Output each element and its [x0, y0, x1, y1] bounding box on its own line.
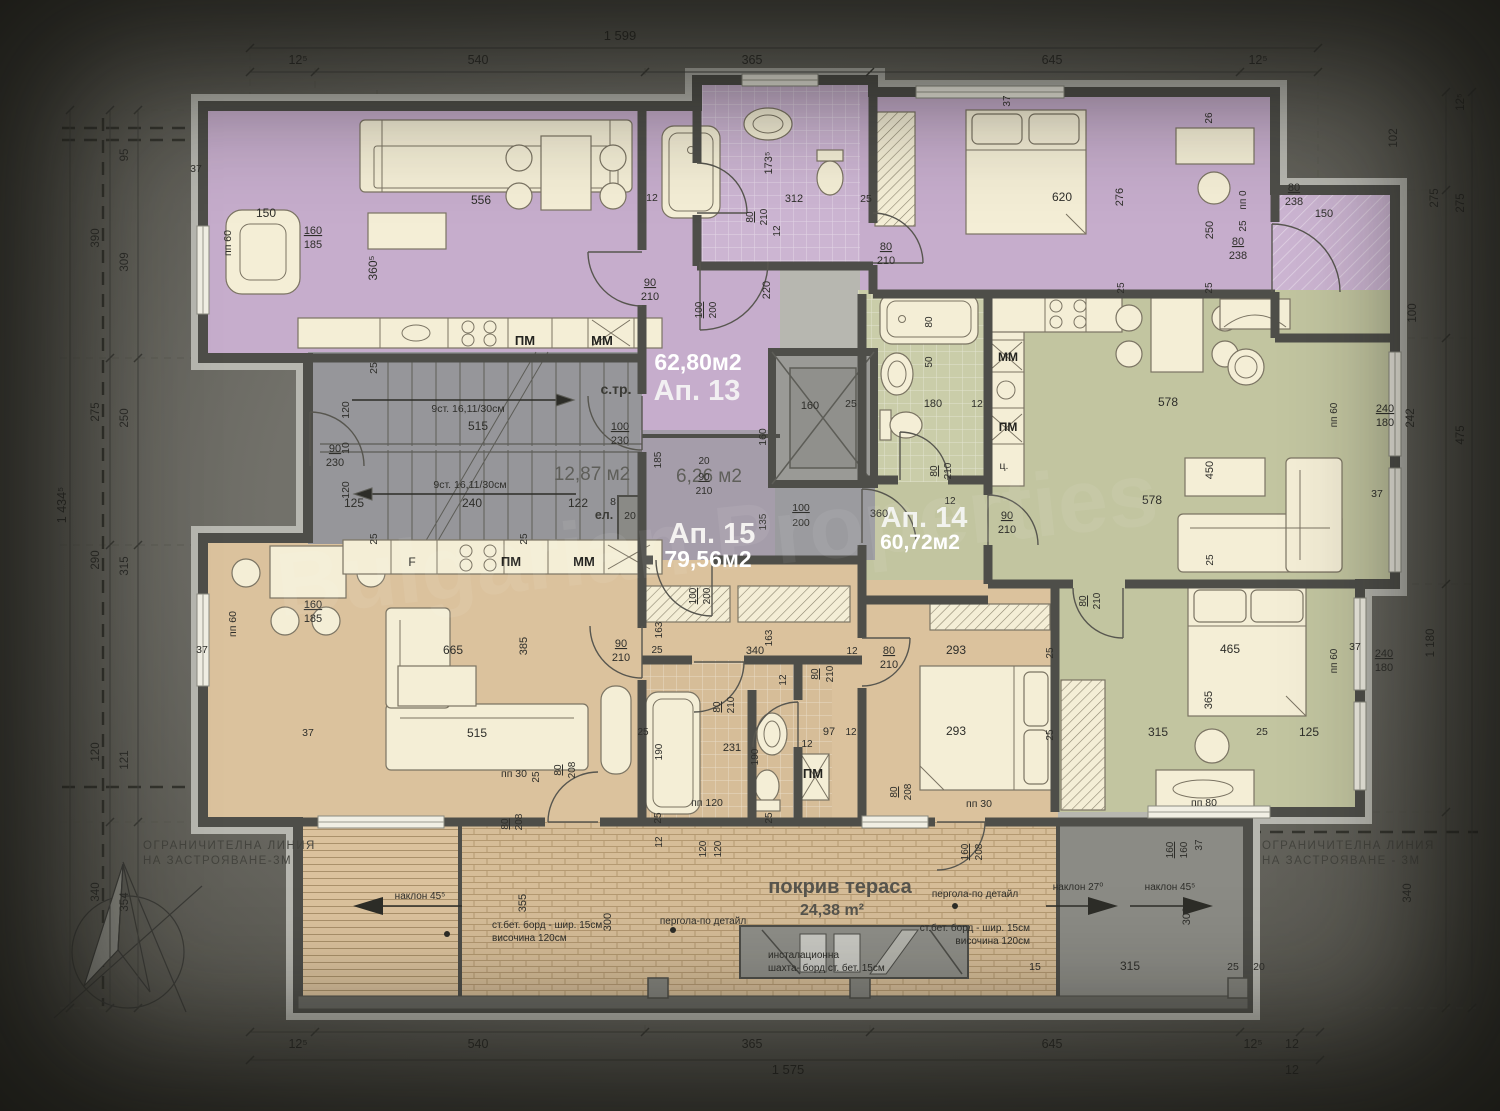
desk-chair — [1195, 729, 1229, 763]
dim-label: 25 — [845, 398, 857, 410]
dim-label: 540 — [468, 53, 489, 67]
dim-label: 37 — [1371, 488, 1383, 500]
dim-label: 210 — [825, 665, 836, 682]
chair — [600, 183, 626, 209]
dim-label: 20 — [698, 456, 710, 467]
north-arrow — [54, 862, 202, 1018]
dim-label: пп 60 — [1329, 648, 1340, 673]
dim-label: 12⁵ — [1243, 1037, 1262, 1051]
dim-label: 578 — [1158, 395, 1178, 409]
dim-label: 37 — [190, 163, 202, 175]
dim-label: 300 — [602, 913, 614, 931]
column — [648, 978, 668, 998]
floor-plan-drawing: 1 59912⁵54036564512⁵12⁵54036564512⁵121 5… — [0, 0, 1500, 1111]
slope-note: наклон 45⁵ — [395, 891, 446, 902]
desk-chair — [1198, 172, 1230, 204]
dim-label: 25 — [860, 193, 872, 205]
coffee-table — [1185, 458, 1265, 496]
dim-label: 12 — [1285, 1037, 1299, 1051]
roof-slope-right — [1058, 822, 1248, 1008]
appliance-label: ПМ — [515, 333, 535, 348]
dim-label: 300 — [1181, 907, 1193, 925]
sink — [881, 353, 913, 395]
dim-label: 80 — [889, 786, 900, 798]
dim-overall-bottom: 1 575 — [772, 1062, 805, 1077]
dim-label: 540 — [468, 1037, 489, 1051]
terrace-label: покрив тераса — [768, 876, 912, 898]
dim-label: 160 — [960, 843, 971, 860]
dim-label: 220 — [761, 281, 773, 299]
dim-label: 309 — [119, 252, 131, 271]
dim-label: пп 60 — [227, 611, 239, 637]
terrace-note: инсталационна — [768, 950, 839, 961]
dim-label: 25 — [1205, 554, 1216, 566]
dim-label: 390 — [90, 228, 102, 247]
dim-label: пп 60 — [1329, 402, 1340, 427]
lounge-chair — [601, 686, 631, 774]
dim-label: пп 80 — [1191, 797, 1217, 809]
dim-label: 450 — [1204, 461, 1216, 479]
dim-label: 25 — [368, 362, 380, 374]
dim-label: 25 — [637, 727, 649, 738]
stair-note: 9ст. 16,11/30см — [431, 403, 504, 415]
dim-label: 90 — [644, 277, 656, 289]
dim-label: 12 — [846, 646, 858, 657]
dim-label: 208 — [514, 813, 525, 830]
chair — [232, 559, 260, 587]
dim-label: 238 — [1285, 196, 1303, 208]
dim-label: 365 — [742, 1037, 763, 1051]
dim-label: 250 — [1204, 221, 1216, 239]
terrace-note: ст.бет. борд - шир. 15см — [920, 922, 1030, 934]
dim-label: 238 — [1229, 250, 1247, 262]
chair — [506, 183, 532, 209]
dim-label: 97 — [823, 726, 835, 738]
dim-label: 293 — [946, 643, 966, 657]
dim-label: 275 — [1429, 188, 1441, 207]
toilet-tank — [880, 410, 891, 440]
dim-label: 12 — [971, 398, 983, 410]
dim-label: 25 — [1116, 282, 1127, 294]
dim-label: 50 — [924, 356, 935, 368]
dim-label: 200 — [708, 301, 719, 318]
dim-label: 120 — [698, 840, 709, 857]
dim-label: 25 — [531, 771, 542, 783]
dim-label: 190 — [654, 743, 665, 760]
dim-label: 180 — [1376, 417, 1394, 429]
dim-label: 37 — [1194, 839, 1205, 851]
appliance-label: ММ — [998, 350, 1018, 364]
dim-label: 210 — [877, 255, 895, 267]
terrace-parapet — [298, 996, 1248, 1009]
toilet-tank — [817, 150, 843, 161]
coffee-table — [368, 213, 446, 249]
dim-label: 160 — [1165, 841, 1176, 858]
dim-label: 15 — [1029, 961, 1041, 973]
appliance-label: ПМ — [999, 420, 1018, 434]
dim-label: 80 — [1078, 595, 1089, 607]
dim-label: 120 — [340, 401, 352, 419]
dim-label: 315 — [119, 556, 131, 575]
dim-label: 100 — [611, 421, 629, 433]
dim-label: 100 — [1407, 303, 1419, 322]
dim-label: 365 — [1203, 691, 1215, 709]
dim-label: 12⁵ — [1455, 93, 1467, 111]
slope-note: наклон 45⁵ — [1145, 882, 1196, 893]
dim-label: 12⁵ — [1248, 53, 1267, 67]
dim-label: 210 — [641, 291, 659, 303]
dim-label: 12 — [646, 192, 658, 204]
dim-label: 25 — [1045, 647, 1056, 659]
chair — [600, 145, 626, 171]
dim-label: 185 — [304, 239, 322, 251]
terrace-note: пергола-по детайл — [660, 916, 746, 927]
dim-label: 80 — [810, 668, 821, 680]
dim-label: 475 — [1455, 425, 1467, 444]
dim-label: 80 — [1288, 182, 1300, 194]
floor-plan-page: 1 59912⁵54036564512⁵12⁵54036564512⁵121 5… — [0, 0, 1500, 1111]
dim-label: 210 — [880, 659, 898, 671]
sofa-chaise — [1286, 458, 1342, 572]
dim-label: 230 — [611, 435, 629, 447]
toilet — [755, 770, 779, 802]
dim-label: 12 — [654, 836, 665, 848]
dim-label: 250 — [119, 408, 131, 427]
dim-label: 340 — [1402, 883, 1414, 902]
dim-label: 180 — [1375, 662, 1393, 674]
dim-label: 100 — [694, 301, 705, 318]
dim-label: 37 — [196, 644, 208, 656]
dim-label: 12 — [845, 727, 857, 738]
dim-label: 231 — [723, 742, 741, 754]
dim-label: пп 0 — [1238, 190, 1249, 210]
kitchen-counter — [986, 296, 1122, 332]
dim-label: 645 — [1042, 53, 1063, 67]
dim-label: 90 — [698, 472, 710, 483]
dim-label: 150 — [1315, 208, 1333, 220]
terrace-note: височина 120см — [492, 933, 567, 944]
toilet-tank — [754, 800, 780, 811]
dim-label: 210 — [759, 208, 770, 225]
dim-label: 120 — [90, 742, 102, 761]
dim-label: 645 — [1042, 1037, 1063, 1051]
staircase-area: 12,87 м2 — [554, 464, 630, 485]
dim-label: 208 — [903, 783, 914, 800]
dim-label: 25 — [764, 812, 775, 824]
dim-label: 125 — [344, 496, 364, 510]
terrace-note: височина 120см — [955, 936, 1030, 947]
dim-label: 185 — [653, 451, 664, 468]
dim-label: 190 — [750, 748, 761, 765]
dim-label: 37 — [1349, 641, 1361, 653]
dim-label: 665 — [443, 643, 463, 657]
stair-note: 9ст. 16,11/30см — [433, 479, 506, 491]
dim-label: 240 — [1375, 648, 1393, 660]
dim-label: 20 — [1253, 961, 1265, 973]
dim-label: 25 — [651, 645, 663, 656]
dim-label: 173⁵ — [763, 152, 775, 175]
pergola-point — [670, 927, 676, 933]
terrace-area: 24,38 m² — [800, 902, 864, 919]
terrace-note: пергола-по детайл — [932, 889, 1018, 900]
dim-label: 1 180 — [1425, 629, 1437, 658]
dim-label: 315 — [1120, 959, 1140, 973]
dim-label: 275 — [90, 402, 102, 421]
dim-label: 25 — [1204, 282, 1215, 294]
bathtub — [662, 126, 720, 218]
dim-label: 515 — [468, 419, 488, 433]
dim-label: 210 — [612, 652, 630, 664]
dining-table — [541, 136, 591, 210]
dim-label: пп 30 — [501, 768, 527, 780]
dim-label: 180 — [924, 398, 942, 410]
dim-label: 12⁵ — [288, 1037, 307, 1051]
boundary-note-left: НА ЗАСТРОЯВАНЕ-3М — [143, 855, 292, 867]
sink — [744, 108, 792, 140]
dim-label: 125 — [1299, 725, 1319, 739]
dim-label: 620 — [1052, 190, 1072, 204]
dim-label: пп 120 — [691, 797, 723, 809]
dim-label: 102 — [1388, 128, 1400, 147]
toilet — [890, 412, 922, 438]
dim-label: 121 — [119, 750, 131, 769]
dim-label: 25 — [1256, 726, 1268, 738]
pergola-point — [952, 903, 958, 909]
dim-overall-left: 1 434⁵ — [55, 487, 69, 523]
dim-label: 80 — [745, 211, 756, 223]
boundary-note-right: ОГРАНИЧИТЕЛНА ЛИНИЯ — [1262, 840, 1435, 852]
dim-label: 80 — [883, 645, 895, 657]
sink — [757, 713, 787, 755]
dim-label: 210 — [1092, 592, 1103, 609]
dim-label: 90 — [329, 443, 341, 455]
terrace-note: шахта- борд ст. бет. 15см — [768, 962, 885, 974]
dim-label: 240 — [462, 496, 482, 510]
dim-label: 10 — [340, 442, 352, 454]
dim-label: 312 — [785, 193, 803, 205]
dim-label: 556 — [471, 193, 491, 207]
staircase-label: с.тр. — [601, 381, 632, 397]
dim-label: 80 — [880, 241, 892, 253]
toilet — [817, 161, 843, 195]
apartment-13-area: 62,80м2 — [654, 349, 741, 375]
dim-label: 355 — [517, 894, 529, 912]
dim-label: 465 — [1220, 642, 1240, 656]
dim-label: 242 — [1405, 408, 1417, 427]
dim-label: 26 — [1204, 112, 1215, 124]
dim-label: 360⁵ — [366, 255, 380, 280]
dim-label: 90 — [615, 638, 627, 650]
appliance-label: ММ — [591, 333, 613, 348]
dim-label: 160 — [801, 400, 819, 412]
dim-label: 515 — [467, 726, 487, 740]
dim-label: пп 60 — [222, 230, 234, 256]
dim-label: 315 — [1148, 725, 1168, 739]
dim-label: 80 — [553, 764, 564, 776]
appliance-label: ПМ — [803, 766, 823, 781]
dim-label: 37 — [302, 727, 314, 739]
slope-note: наклон 27⁰ — [1053, 882, 1104, 893]
dim-label: 210 — [726, 696, 737, 713]
dim-label: 208 — [567, 761, 578, 778]
dim-label: 80 — [924, 316, 935, 328]
boundary-note-right: НА ЗАСТРОЯВАНЕ - 3М — [1262, 855, 1421, 867]
desk — [1176, 128, 1254, 164]
dim-label: 230 — [326, 457, 344, 469]
dim-label: 163 — [654, 621, 665, 638]
dim-label: 12 — [778, 674, 789, 686]
column — [850, 978, 870, 998]
chair — [1116, 305, 1142, 331]
pergola-point — [444, 931, 450, 937]
dim-label: 12 — [1285, 1063, 1299, 1077]
dim-label: 160 — [1179, 841, 1190, 858]
dim-label: 240 — [1376, 403, 1394, 415]
dim-label: 385 — [518, 637, 530, 655]
dim-label: 340 — [746, 645, 764, 657]
apartment-13-label: Ап. 13 — [654, 375, 741, 407]
dim-label: 25 — [1238, 220, 1249, 232]
dim-label: 120 — [713, 840, 724, 857]
column — [1228, 978, 1248, 998]
dim-label: 275 — [1455, 193, 1467, 212]
dim-label: 150 — [256, 206, 276, 220]
dim-label: 354 — [119, 892, 131, 912]
dim-label: 163 — [764, 629, 775, 646]
boundary-note-left: ОГРАНИЧИТЕЛНА ЛИНИЯ — [143, 840, 316, 852]
dim-label: 25 — [1227, 961, 1239, 973]
terrace-note: ст.бет. борд - шир. 15см — [492, 919, 602, 931]
dim-label: 80 — [712, 701, 723, 713]
dim-label: 12⁵ — [288, 53, 307, 67]
dim-overall-top: 1 599 — [604, 28, 637, 43]
dim-label: 290 — [90, 550, 102, 569]
dim-label: 80 — [1232, 236, 1244, 248]
dim-label: 160 — [757, 428, 769, 446]
dim-label: 340 — [90, 882, 102, 901]
dim-label: 208 — [974, 843, 985, 860]
armchair — [1228, 349, 1264, 385]
chair — [1116, 341, 1142, 367]
dim-label: 25 — [653, 812, 664, 824]
chair — [506, 145, 532, 171]
dim-label: 365 — [742, 53, 763, 67]
dim-label: 95 — [119, 149, 131, 162]
dim-label: 80 — [500, 818, 511, 830]
dim-label: 293 — [946, 724, 966, 738]
coffee-table — [398, 666, 476, 706]
dim-label: 25 — [1045, 729, 1056, 741]
armchair — [226, 210, 300, 294]
dim-label: пп 30 — [966, 798, 992, 810]
dim-label: 276 — [1114, 188, 1126, 206]
dim-label: 160 — [304, 225, 322, 237]
dim-label: 12 — [772, 225, 783, 237]
dining-table — [1151, 298, 1203, 372]
dim-label: 12 — [801, 739, 813, 750]
dim-label: 37 — [1002, 95, 1013, 107]
